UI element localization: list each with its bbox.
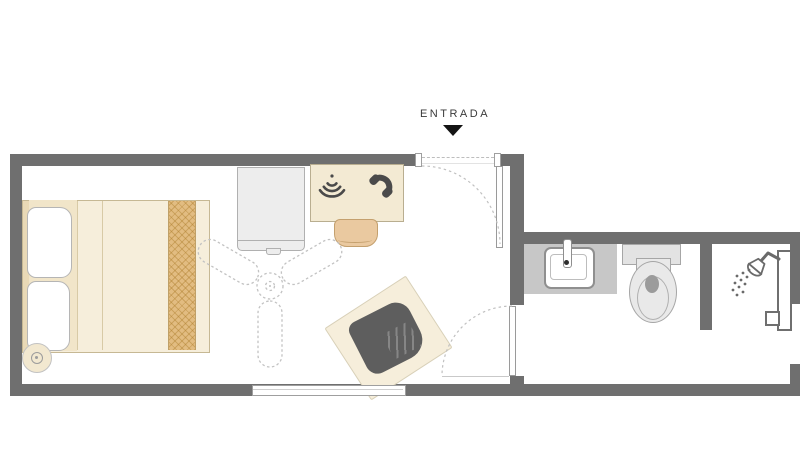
floor-plan: ENTRADA: [0, 0, 800, 458]
door-swing-arcs: [0, 0, 800, 458]
